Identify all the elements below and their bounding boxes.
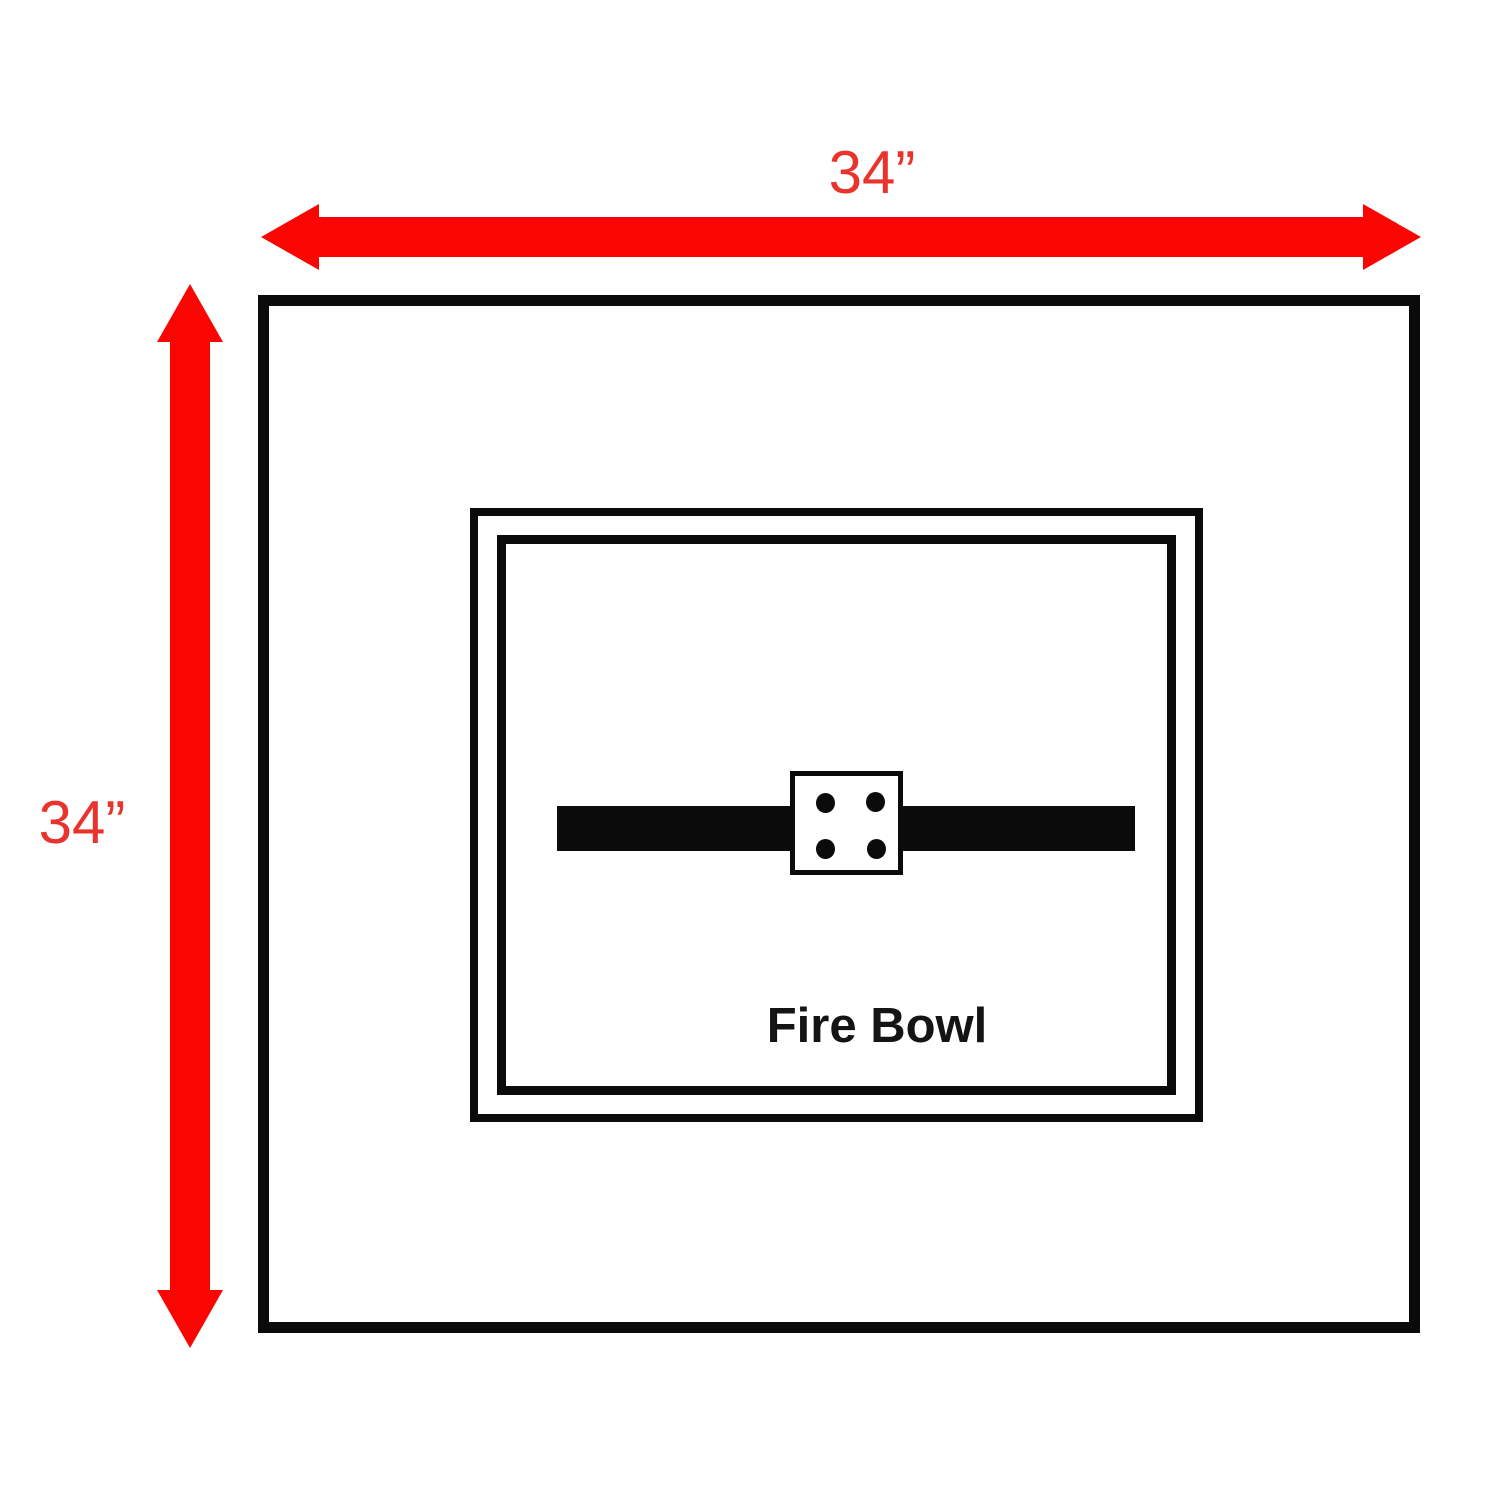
burner-port-dot (867, 839, 886, 859)
diagram-canvas: 34” 34” Fire Bowl (0, 0, 1500, 1500)
height-dimension-label: 34” (12, 788, 152, 857)
height-dimension-arrow-icon (150, 284, 230, 1348)
burner-port-dot (866, 792, 885, 812)
width-dimension-arrow-icon (261, 197, 1421, 277)
width-dimension-arrow-shape (261, 204, 1421, 270)
burner-port-dot (816, 839, 835, 859)
fire-bowl-label: Fire Bowl (697, 998, 1057, 1054)
burner-port-dot (816, 793, 835, 813)
burner-valve-box (790, 771, 903, 875)
height-dimension-arrow-shape (157, 284, 223, 1348)
